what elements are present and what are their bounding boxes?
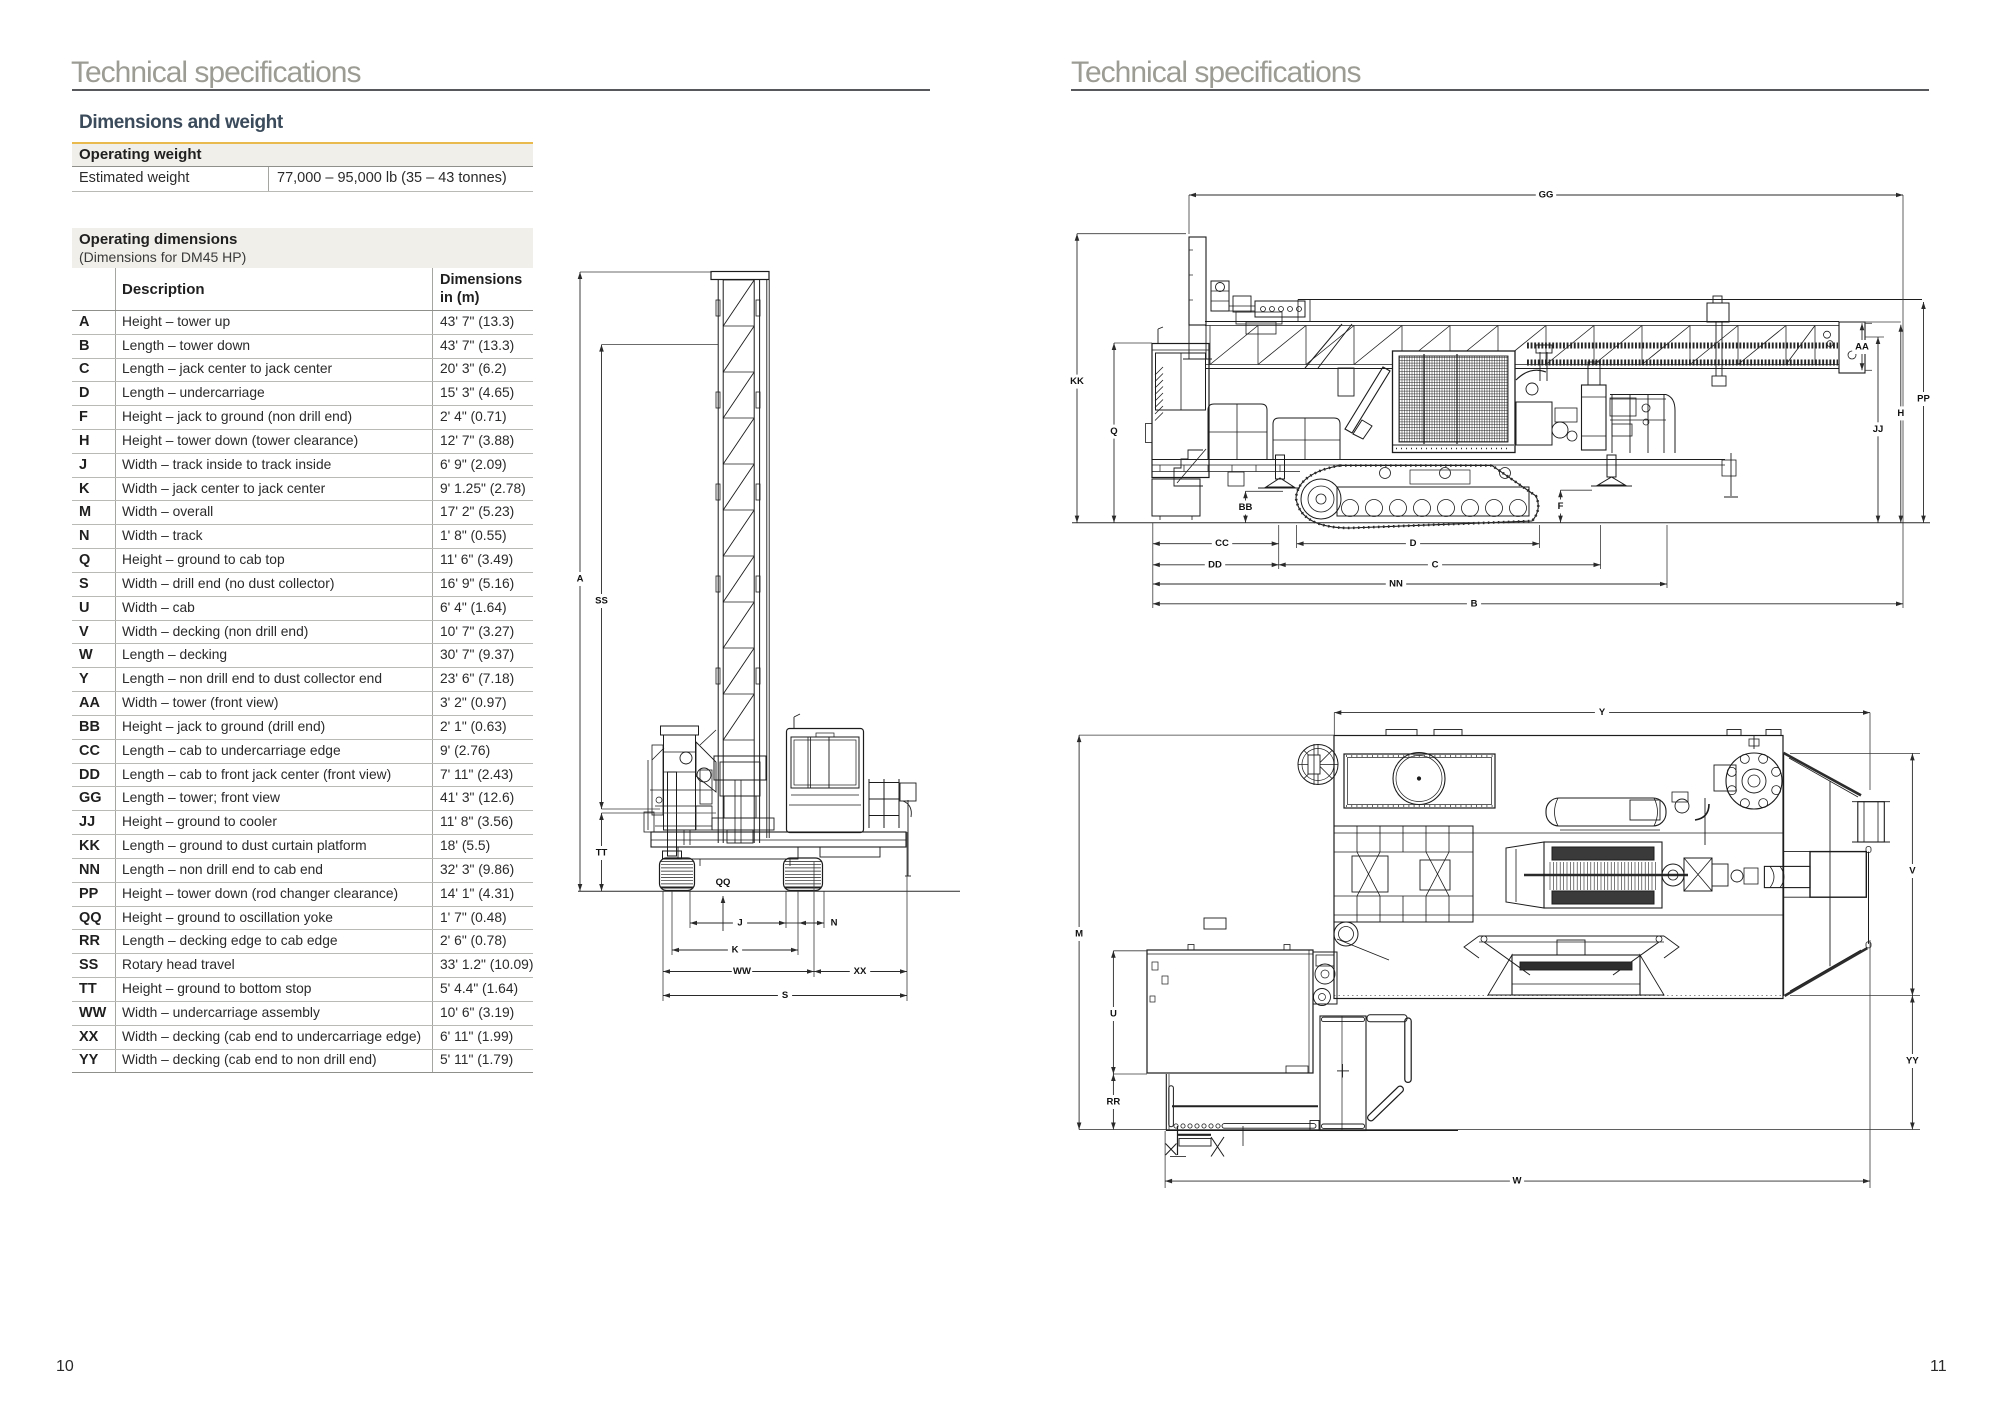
svg-text:J: J: [737, 918, 742, 929]
svg-text:KK: KK: [1070, 376, 1084, 387]
svg-text:SS: SS: [595, 596, 608, 607]
svg-text:B: B: [1471, 598, 1478, 609]
svg-text:N: N: [831, 918, 838, 929]
svg-text:F: F: [1558, 501, 1564, 512]
svg-text:XX: XX: [854, 966, 867, 977]
svg-text:JJ: JJ: [1873, 424, 1884, 435]
svg-text:U: U: [1110, 1009, 1117, 1020]
svg-text:GG: GG: [1539, 190, 1554, 201]
svg-text:BB: BB: [1239, 502, 1253, 513]
svg-text:QQ: QQ: [716, 877, 731, 888]
svg-text:A: A: [577, 574, 584, 585]
svg-text:AA: AA: [1855, 342, 1869, 353]
svg-text:C: C: [1432, 559, 1439, 570]
svg-text:M: M: [1075, 929, 1083, 940]
svg-text:YY: YY: [1906, 1056, 1919, 1067]
svg-text:D: D: [1410, 538, 1417, 549]
svg-text:V: V: [1909, 866, 1916, 877]
svg-text:W: W: [1513, 1176, 1522, 1187]
svg-text:NN: NN: [1389, 579, 1403, 590]
svg-text:S: S: [782, 990, 788, 1001]
svg-text:CC: CC: [1215, 538, 1229, 549]
svg-text:WW: WW: [733, 966, 751, 977]
svg-text:PP: PP: [1917, 394, 1930, 405]
svg-text:DD: DD: [1208, 559, 1222, 570]
svg-text:K: K: [732, 945, 739, 956]
svg-text:TT: TT: [596, 848, 608, 859]
svg-text:RR: RR: [1107, 1097, 1121, 1108]
svg-text:Y: Y: [1599, 707, 1606, 718]
svg-text:Q: Q: [1110, 426, 1117, 437]
svg-text:H: H: [1897, 408, 1904, 419]
